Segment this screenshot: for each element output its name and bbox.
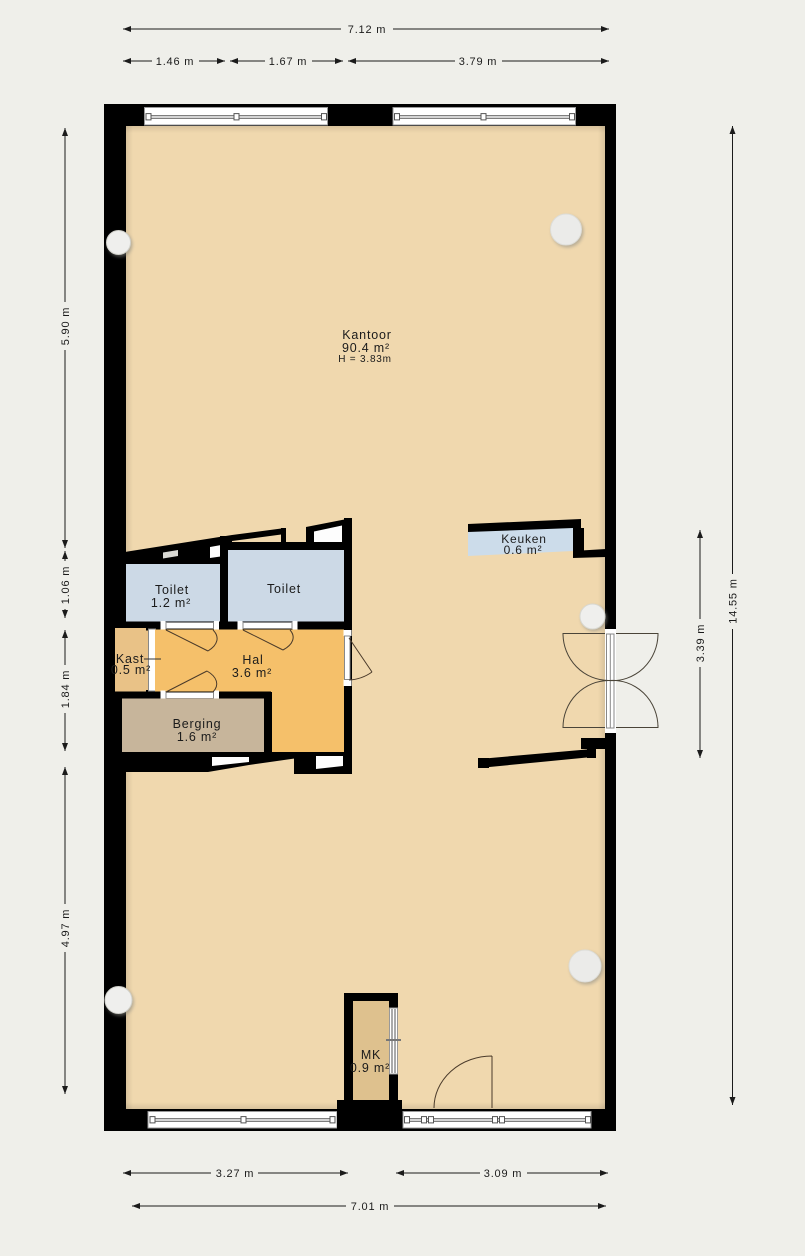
- svg-text:3.27 m: 3.27 m: [216, 1168, 254, 1180]
- svg-text:1.67 m: 1.67 m: [269, 56, 307, 68]
- svg-text:1.6 m²: 1.6 m²: [177, 730, 217, 744]
- svg-text:0.9 m²: 0.9 m²: [350, 1061, 390, 1075]
- svg-text:MK: MK: [361, 1048, 381, 1062]
- svg-text:14.55 m: 14.55 m: [728, 578, 740, 623]
- svg-text:H = 3.83m: H = 3.83m: [338, 354, 392, 365]
- svg-text:7.01 m: 7.01 m: [351, 1201, 389, 1213]
- svg-text:Hal: Hal: [242, 653, 263, 667]
- svg-text:Kantoor: Kantoor: [342, 328, 391, 342]
- svg-text:90.4 m²: 90.4 m²: [342, 341, 390, 355]
- svg-text:5.90 m: 5.90 m: [60, 307, 72, 345]
- svg-text:0.5 m²: 0.5 m²: [111, 663, 151, 677]
- svg-text:1.84 m: 1.84 m: [60, 670, 72, 708]
- svg-text:Berging: Berging: [173, 717, 222, 731]
- svg-text:Toilet: Toilet: [155, 583, 189, 597]
- svg-text:Toilet: Toilet: [267, 582, 301, 596]
- svg-text:1.46 m: 1.46 m: [156, 56, 194, 68]
- svg-text:3.6 m²: 3.6 m²: [232, 666, 272, 680]
- svg-text:1.2 m²: 1.2 m²: [151, 596, 191, 610]
- svg-text:7.12 m: 7.12 m: [348, 24, 386, 36]
- svg-text:3.39 m: 3.39 m: [695, 624, 707, 662]
- svg-text:4.97 m: 4.97 m: [60, 909, 72, 947]
- svg-text:0.6 m²: 0.6 m²: [504, 543, 543, 557]
- svg-text:3.79 m: 3.79 m: [459, 56, 497, 68]
- svg-text:1.06 m: 1.06 m: [60, 566, 72, 604]
- svg-text:3.09 m: 3.09 m: [484, 1168, 522, 1180]
